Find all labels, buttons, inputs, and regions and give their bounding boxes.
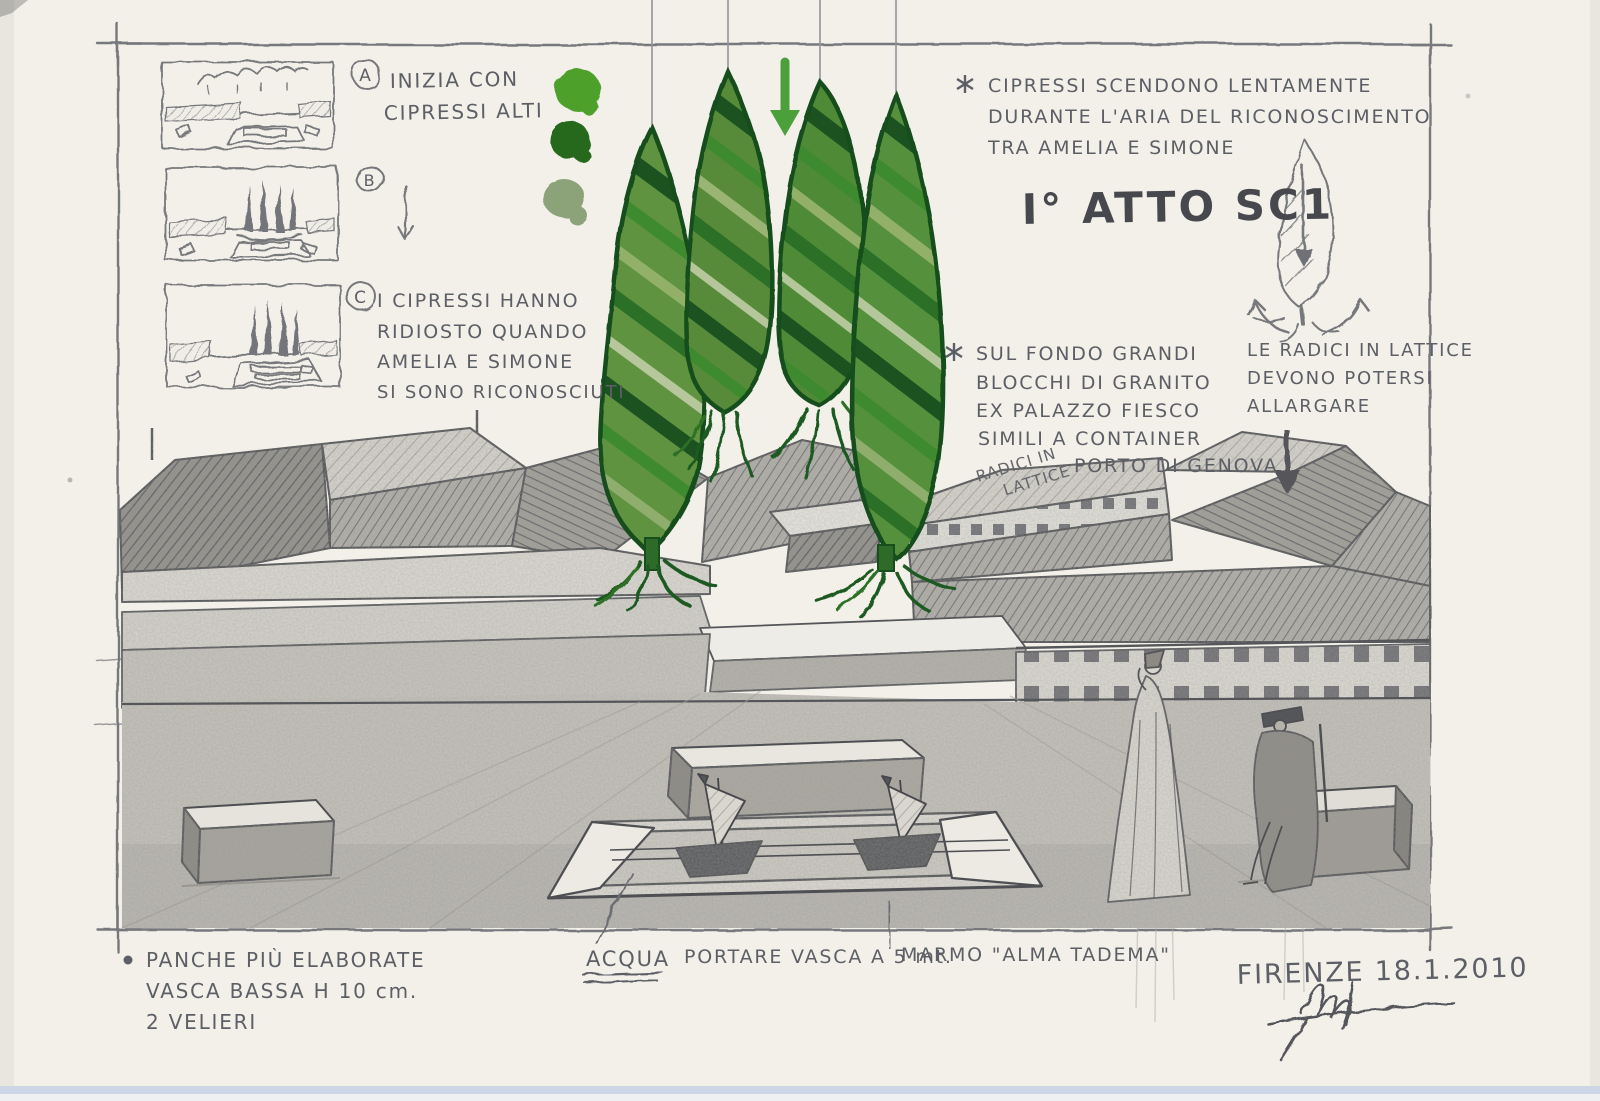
note-c-line4: SI SONO RICONOSCIUTI xyxy=(377,382,625,403)
note-descent-line2: DURANTE L'ARIA DEL RICONOSCIMENTO xyxy=(988,106,1431,128)
note-granite-line4: SIMILI A CONTAINER xyxy=(978,428,1202,450)
note-descent-line1: CIPRESSI SCENDONO LENTAMENTE xyxy=(988,75,1372,97)
note-granite-line1: SUL FONDO GRANDI xyxy=(976,343,1198,365)
sketch-page: A B C xyxy=(0,0,1600,1101)
marmo-label: MARMO "ALMA TADEMA" xyxy=(901,944,1171,966)
note-c-line1: I CIPRESSI HANNO xyxy=(377,290,579,312)
note-roots-line3: ALLARGARE xyxy=(1247,396,1371,417)
note-descent-line3: TRA AMELIA E SIMONE xyxy=(987,137,1235,159)
bullet-icon xyxy=(124,956,133,965)
note-c-line3: AMELIA E SIMONE xyxy=(377,351,574,373)
act-scene-title: I° ATTO SC1 xyxy=(1021,180,1334,234)
thumb-letter-a: A xyxy=(359,66,372,86)
note-a-line1: INIZIA CON xyxy=(390,67,519,93)
left-bench xyxy=(182,800,340,886)
note-panche-line3: 2 VELIERI xyxy=(146,1010,257,1034)
note-panche-line2: VASCA BASSA H 10 cm. xyxy=(146,979,418,1003)
note-granite-line3: EX PALAZZO FIESCO xyxy=(976,400,1201,422)
note-granite-line5: PORTO DI GENOVA xyxy=(1074,455,1278,477)
note-panche-line1: PANCHE PIÙ ELABORATE xyxy=(146,948,425,972)
acqua-label: ACQUA xyxy=(586,947,670,971)
water-basin xyxy=(548,812,1042,898)
thumb-letter-c: C xyxy=(354,288,368,308)
thumb-letter-b: B xyxy=(364,171,377,190)
note-roots-line2: DEVONO POTERSI xyxy=(1247,368,1434,389)
note-granite-line2: BLOCCHI DI GRANITO xyxy=(976,372,1212,394)
note-roots-line1: LE RADICI IN LATTICE xyxy=(1247,340,1474,361)
note-c-line2: RIDIOSTO QUANDO xyxy=(377,321,588,343)
note-a-line2: CIPRESSI ALTI xyxy=(384,98,544,125)
